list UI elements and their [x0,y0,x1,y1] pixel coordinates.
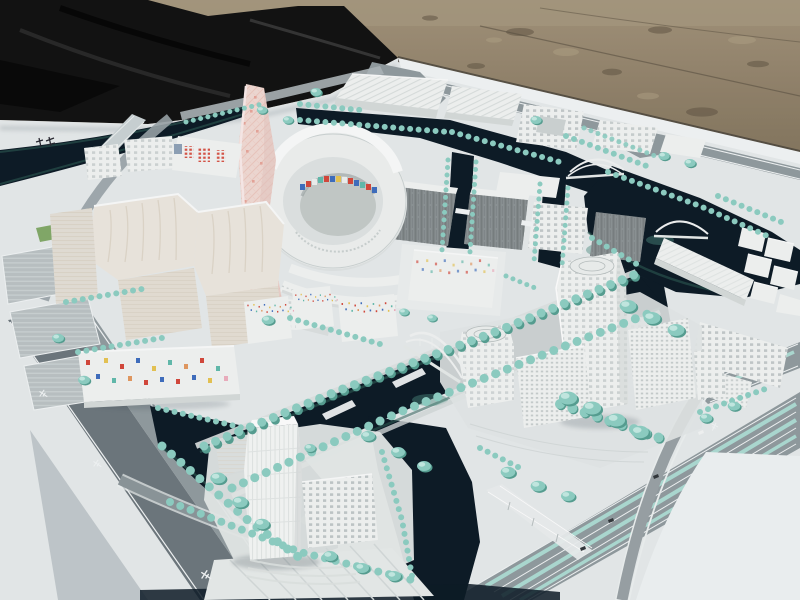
scale-model-scene [0,0,800,600]
photo-tint-overlay [0,0,800,600]
model-photo [0,0,800,600]
